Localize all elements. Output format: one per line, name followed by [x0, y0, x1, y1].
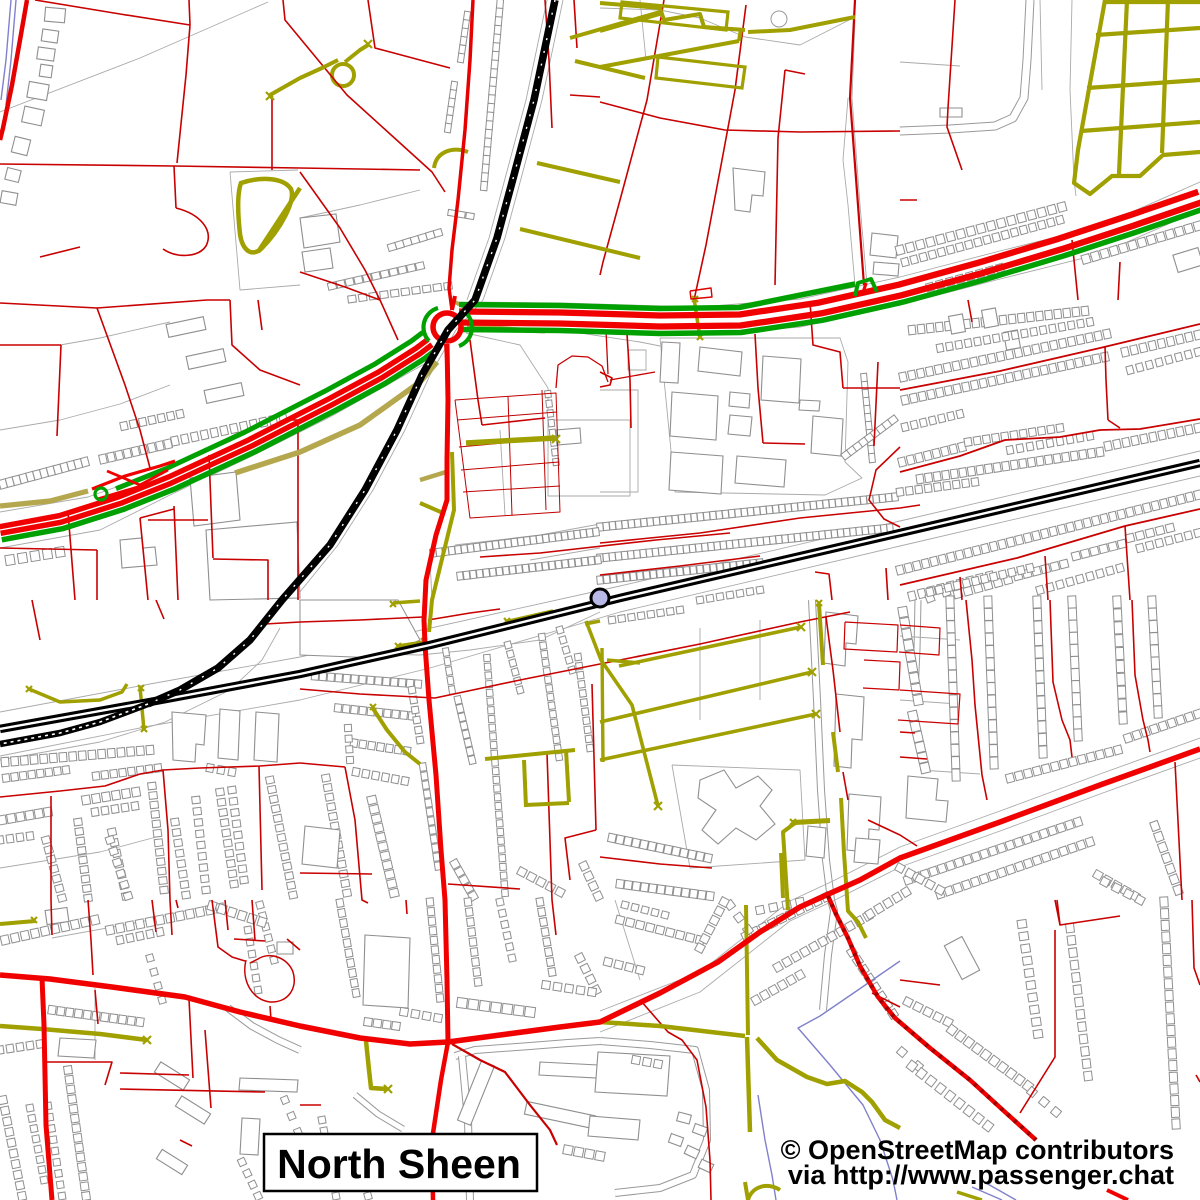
svg-text:via http://www.passenger.chat: via http://www.passenger.chat	[788, 1160, 1174, 1190]
svg-text:North Sheen: North Sheen	[277, 1141, 521, 1187]
